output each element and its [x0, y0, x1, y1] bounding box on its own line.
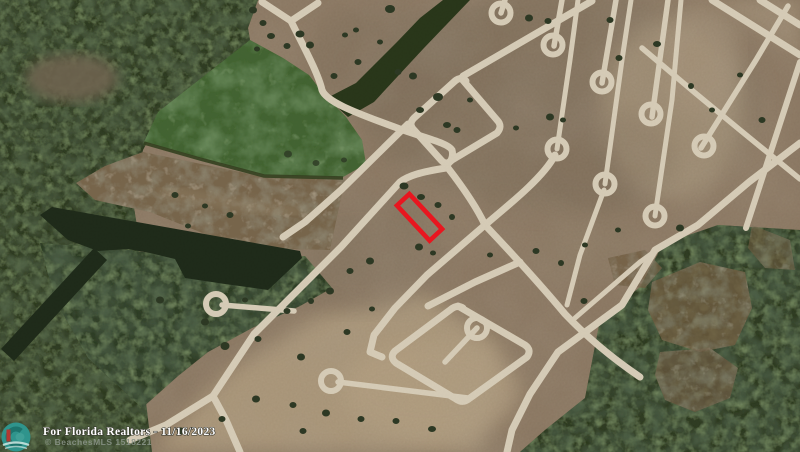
- svg-text:© BeachesMLS 1518221: © BeachesMLS 1518221: [45, 437, 152, 447]
